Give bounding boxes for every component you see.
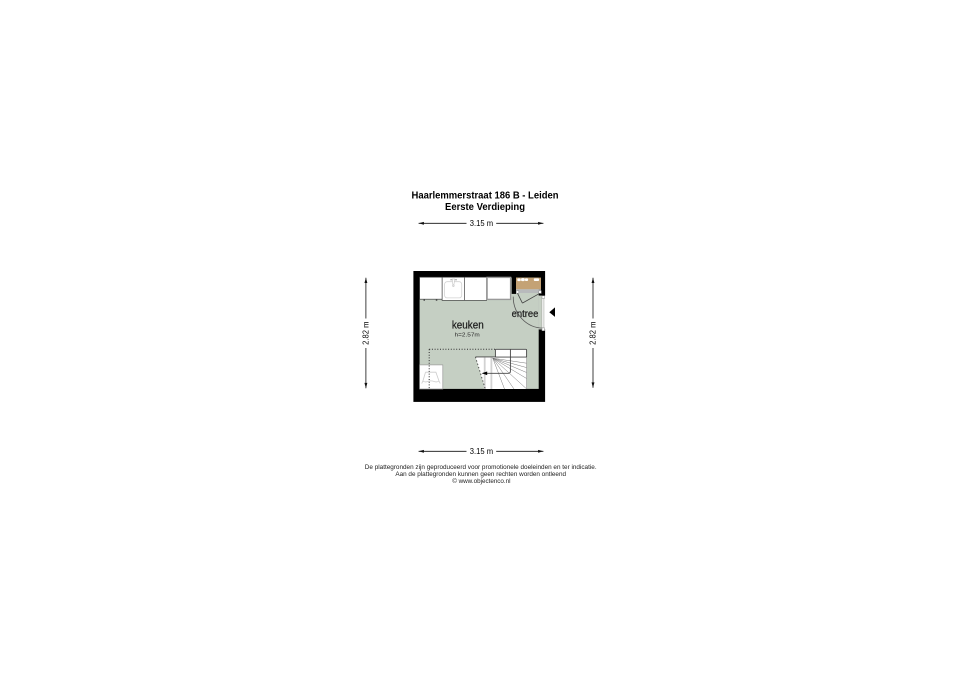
svg-text:3.15 m: 3.15 m: [470, 447, 493, 456]
svg-text:2.82 m: 2.82 m: [589, 322, 598, 345]
svg-text:3.15 m: 3.15 m: [470, 219, 493, 228]
svg-text:entree: entree: [512, 309, 539, 320]
svg-text:2.82 m: 2.82 m: [362, 322, 371, 345]
svg-text:© www.objectenco.nl: © www.objectenco.nl: [452, 478, 510, 485]
svg-text:h=2.57m: h=2.57m: [455, 333, 480, 339]
svg-text:De plattegronden zijn geproduc: De plattegronden zijn geproduceerd voor …: [365, 464, 597, 471]
svg-text:Eerste Verdieping: Eerste Verdieping: [445, 202, 525, 213]
svg-text:Aan de plattegronden kunnen ge: Aan de plattegronden kunnen geen rechten…: [395, 471, 566, 478]
svg-text:Haarlemmerstraat 186 B - Leide: Haarlemmerstraat 186 B - Leiden: [412, 191, 559, 202]
svg-text:keuken: keuken: [452, 319, 484, 331]
